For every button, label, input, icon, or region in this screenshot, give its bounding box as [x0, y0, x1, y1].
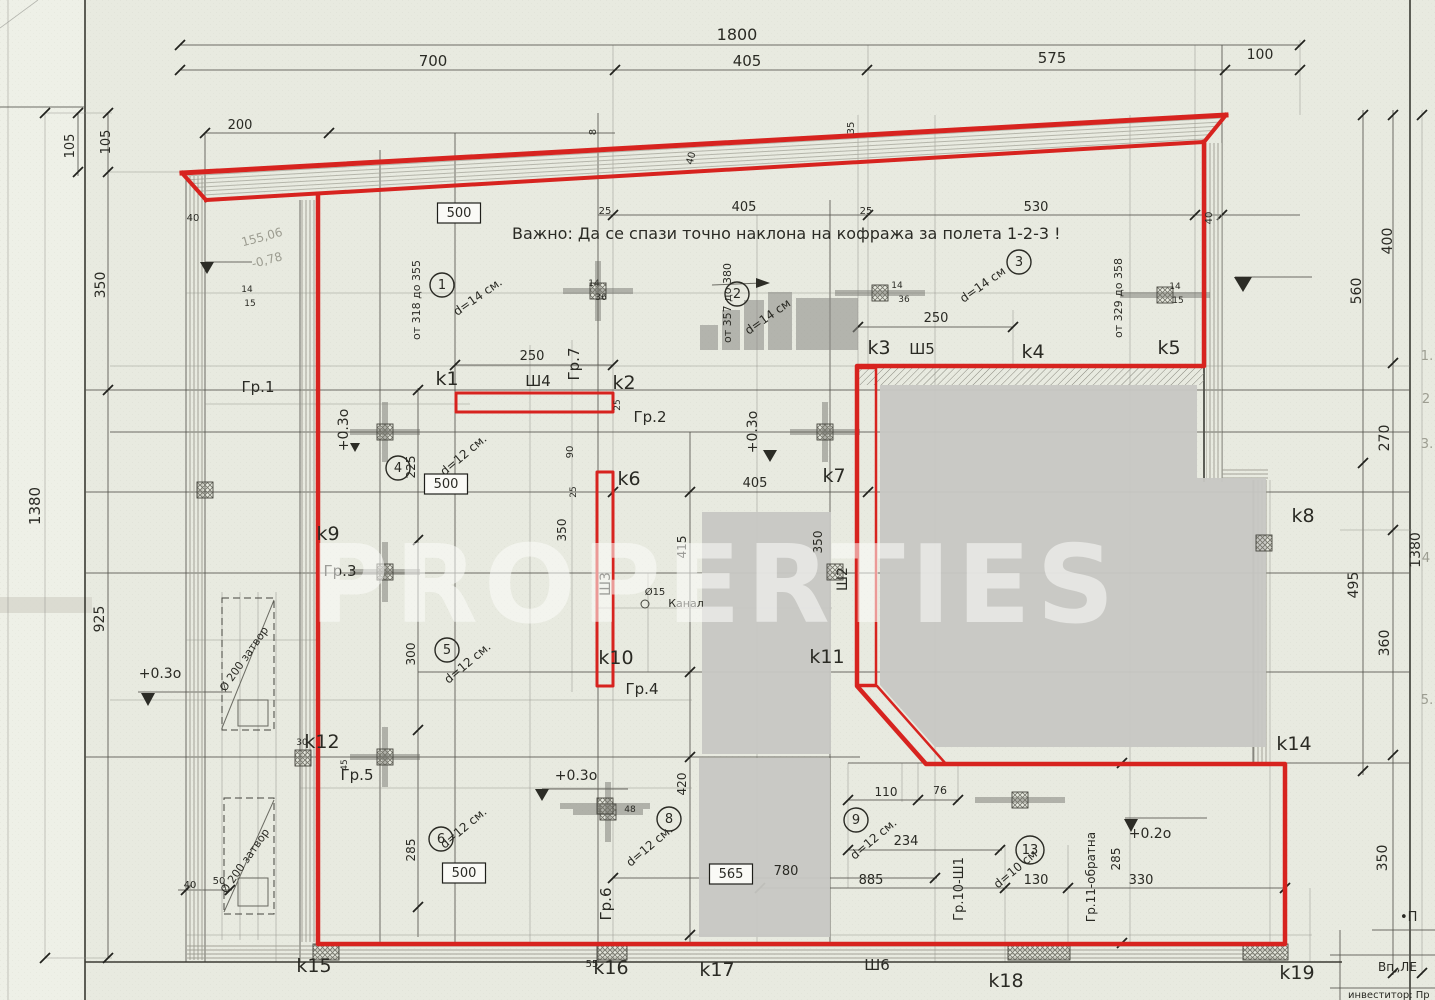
label: Гр.11-обратна [1084, 832, 1098, 922]
label: 25 [613, 399, 623, 410]
label: 25 [569, 486, 579, 497]
label: 250 [924, 311, 949, 326]
label: Ш5 [909, 340, 935, 358]
label: +0.3о [336, 409, 352, 452]
label: от 329 до 358 [1112, 258, 1125, 338]
label: Гр.6 [597, 888, 615, 921]
label: 405 [743, 476, 768, 491]
label: 1380 [26, 487, 44, 525]
label: 500 [447, 206, 472, 221]
label: 36 [898, 295, 910, 305]
label: 14 [588, 279, 600, 289]
label: 76 [933, 784, 947, 797]
label: k10 [598, 647, 633, 669]
label: 2 [733, 287, 741, 302]
label: 200 [228, 118, 253, 133]
label: 700 [419, 52, 448, 70]
label: k5 [1157, 337, 1180, 359]
label: 45 [340, 759, 350, 770]
label: 5. [1421, 693, 1433, 708]
label: 2 [1422, 392, 1430, 407]
label: 560 [1349, 278, 1365, 305]
label: k6 [617, 468, 640, 490]
label: 3. [1421, 437, 1433, 452]
blueprint-page: 1800700405575100200105105350925138040141… [0, 0, 1435, 1000]
label: Важно: Да се спази точно наклона на кофр… [512, 224, 1061, 243]
label: 330 [1129, 873, 1154, 888]
label: 565 [719, 867, 744, 882]
label: 55 [586, 959, 599, 970]
label: Ш6 [864, 956, 890, 974]
bottom-hatch-patch [1243, 944, 1288, 960]
label: 25 [599, 206, 612, 217]
label: +0.2о [1129, 826, 1172, 842]
bottom-hatch-patch [1008, 944, 1070, 960]
label: k7 [822, 465, 845, 487]
label: k3 [867, 337, 890, 359]
label: 495 [1346, 572, 1362, 599]
label: k8 [1291, 505, 1314, 527]
label: 8 [588, 129, 599, 135]
label: 15 [1172, 296, 1183, 306]
label: 40 [184, 880, 197, 891]
label: Гр.7 [565, 348, 583, 381]
label: 105 [63, 134, 78, 159]
label: Гр.1 [242, 378, 275, 396]
label: 285 [1109, 848, 1123, 871]
right-wall-band [1206, 143, 1222, 480]
label: 500 [452, 866, 477, 881]
label: 90 [565, 446, 576, 459]
scan-artifact [0, 597, 92, 613]
label: от 318 до 355 [410, 260, 423, 340]
label: +0.3о [745, 411, 761, 454]
blueprint-drawing: 1800700405575100200105105350925138040141… [0, 0, 1435, 1000]
label: 4 [394, 461, 402, 476]
label: 100 [1247, 47, 1274, 63]
gray-block-bottom [699, 758, 830, 937]
left-wall-band [187, 176, 205, 960]
label: 1800 [717, 25, 758, 44]
label: 14 [1169, 282, 1181, 292]
label: 925 [92, 606, 108, 633]
label: •П [1400, 910, 1417, 925]
label: 40 [187, 213, 200, 224]
label: 500 [434, 477, 459, 492]
label: +0.3о [139, 666, 182, 682]
label: 30 [296, 738, 308, 748]
label: 1. [1421, 349, 1433, 364]
label: 15 [244, 299, 255, 309]
label: 105 [99, 130, 114, 155]
label: 250 [520, 349, 545, 364]
label: 350 [1375, 845, 1391, 872]
top-band-gray-block [857, 368, 1204, 385]
label: 130 [1024, 873, 1049, 888]
label: 420 [675, 773, 689, 796]
label: 405 [732, 200, 757, 215]
label: 780 [774, 864, 799, 879]
label: k12 [304, 731, 339, 753]
label: Гр.4 [626, 680, 659, 698]
label: k4 [1021, 341, 1044, 363]
label: k16 [593, 957, 628, 979]
label: k11 [809, 646, 844, 668]
label: k14 [1276, 733, 1311, 755]
label: 14 [241, 285, 253, 295]
label: 350 [93, 272, 109, 299]
label: k19 [1279, 962, 1314, 984]
label: 575 [1038, 49, 1067, 67]
label: Гр.10-Ш1 [952, 857, 967, 921]
label: 1 [438, 278, 446, 293]
label: 885 [859, 873, 884, 888]
label: 285 [404, 839, 418, 862]
label: от 357 до 380 [721, 263, 734, 343]
label: 48 [624, 805, 636, 815]
label: k18 [988, 970, 1023, 992]
label: 40 [1204, 212, 1215, 225]
label: 14 [891, 281, 903, 291]
label: 3 [1015, 255, 1023, 270]
label: 270 [1377, 425, 1393, 452]
label: 110 [875, 785, 898, 799]
bottom-wall-band [187, 944, 1285, 960]
label: 4 [1422, 551, 1430, 566]
label: 225 [404, 456, 418, 479]
label: k2 [612, 372, 635, 394]
watermark-text: PROPERTIES [310, 523, 1121, 648]
label: 405 [733, 52, 762, 70]
label: 234 [894, 834, 919, 849]
label: k15 [296, 955, 331, 977]
label: +0.3о [555, 768, 598, 784]
label: Гр.2 [634, 408, 667, 426]
label: 360 [1377, 630, 1393, 657]
label: 35 [846, 122, 857, 135]
label: 25 [860, 206, 873, 217]
label: инвеститор: Пр [1348, 990, 1430, 1000]
label: k1 [435, 368, 458, 390]
label: Вп„ЛЕ [1378, 960, 1417, 974]
label: k17 [699, 959, 734, 981]
label: 400 [1380, 228, 1396, 255]
label: 36 [595, 293, 607, 303]
label: 530 [1024, 200, 1049, 215]
label: Ш4 [525, 372, 551, 390]
label: 9 [852, 813, 860, 828]
